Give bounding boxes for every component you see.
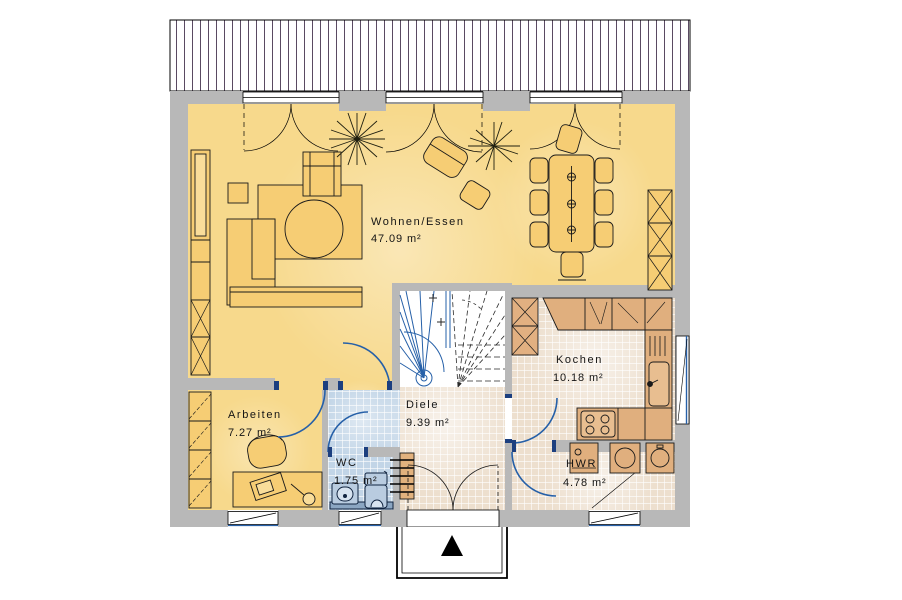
window-top-2 [386, 92, 483, 103]
roof-deck-band [170, 20, 690, 91]
wall-arbeiten-top [188, 378, 275, 390]
wall-bottom [170, 510, 228, 527]
bookcase [189, 392, 211, 508]
window-wc-bottom [339, 512, 381, 526]
wall-bottom [640, 510, 690, 527]
wall-top [170, 91, 243, 104]
tall-cabinet-left [191, 300, 210, 375]
wall-bottom [381, 510, 407, 527]
wall-stair-top [392, 283, 512, 291]
floor-plan-drawing: Wohnen/Essen 47.09 m² Kochen 10.18 m² Di… [0, 0, 902, 600]
entrance-porch [397, 527, 507, 578]
window-kitchen-right [676, 336, 689, 424]
stove [581, 411, 615, 437]
area-wohnen-essen: 47.09 m² [371, 233, 422, 245]
entrance-threshold [407, 510, 499, 527]
coffee-table [285, 200, 343, 258]
wall-bottom [499, 510, 589, 527]
wall-bottom [278, 510, 339, 527]
area-diele: 9.39 m² [406, 417, 450, 429]
side-table [228, 183, 248, 203]
dining-cabinet [648, 190, 672, 290]
wall-top-pier [483, 91, 530, 111]
label-diele: Diele [406, 399, 439, 411]
wall-right [675, 91, 690, 527]
sofa-group [227, 183, 362, 307]
label-wohnen-essen: Wohnen/Essen [371, 216, 465, 228]
washing-machine [610, 443, 640, 473]
wall-top [622, 91, 690, 104]
area-hwr: 4.78 m² [563, 477, 607, 489]
wall-wc-left [322, 390, 328, 510]
wall-wc-right [393, 447, 400, 510]
window-arbeiten-bottom [228, 512, 278, 526]
area-kochen: 10.18 m² [553, 372, 604, 384]
label-wc: WC [336, 457, 358, 469]
window-top-1 [243, 92, 339, 103]
radiator [390, 453, 414, 499]
wall-left [170, 91, 188, 527]
label-kochen: Kochen [556, 354, 603, 366]
kitchen-counter-top [543, 298, 672, 330]
stair-cabinet [512, 298, 538, 355]
kitchen-sink [648, 362, 670, 406]
area-arbeiten: 7.27 m² [228, 427, 272, 439]
label-arbeiten: Arbeiten [228, 409, 282, 421]
wall-stair-left [392, 283, 400, 390]
area-wc: 1.75 m² [334, 475, 378, 487]
floor-plan-canvas: Wohnen/Essen 47.09 m² Kochen 10.18 m² Di… [0, 0, 902, 600]
dryer [646, 443, 674, 473]
label-hwr: HWR [566, 458, 597, 470]
plant-icon [329, 113, 385, 165]
wall-diele-kochen [505, 443, 512, 510]
armchair [303, 152, 341, 196]
wall-shelf-unit [191, 150, 210, 300]
wall-top-pier [339, 91, 386, 111]
window-top-3 [530, 92, 622, 103]
wall-stair-right [505, 291, 512, 390]
